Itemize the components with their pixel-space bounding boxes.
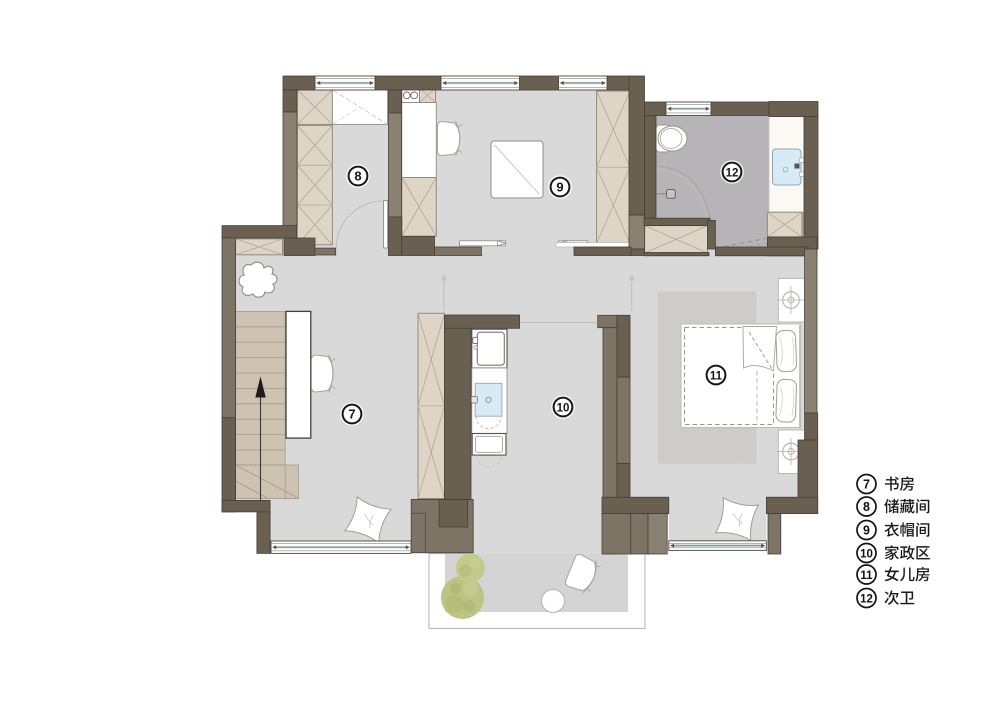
svg-text:9: 9: [556, 179, 563, 194]
svg-text:7: 7: [863, 477, 870, 491]
svg-text:12: 12: [860, 593, 873, 605]
svg-text:9: 9: [863, 523, 870, 537]
svg-text:12: 12: [726, 167, 739, 179]
svg-text:8: 8: [354, 168, 361, 183]
svg-text:10: 10: [860, 548, 873, 560]
svg-text:11: 11: [710, 370, 723, 382]
svg-text:8: 8: [863, 500, 870, 514]
svg-text:11: 11: [860, 570, 873, 582]
svg-text:10: 10: [557, 402, 570, 414]
svg-text:7: 7: [348, 406, 355, 421]
